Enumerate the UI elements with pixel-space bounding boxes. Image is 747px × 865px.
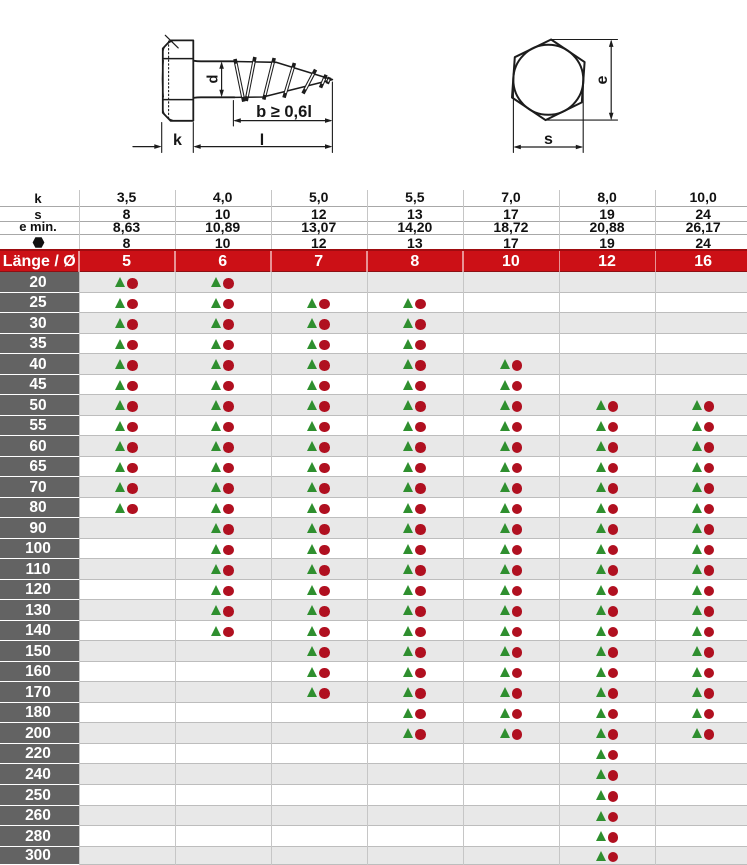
svg-text:b ≥ 0,6l: b ≥ 0,6l bbox=[256, 103, 312, 121]
svg-text:k: k bbox=[173, 132, 182, 149]
svg-text:l: l bbox=[260, 132, 264, 149]
svg-text:e: e bbox=[594, 75, 611, 84]
svg-text:d: d bbox=[206, 75, 222, 84]
svg-text:s: s bbox=[544, 131, 553, 148]
